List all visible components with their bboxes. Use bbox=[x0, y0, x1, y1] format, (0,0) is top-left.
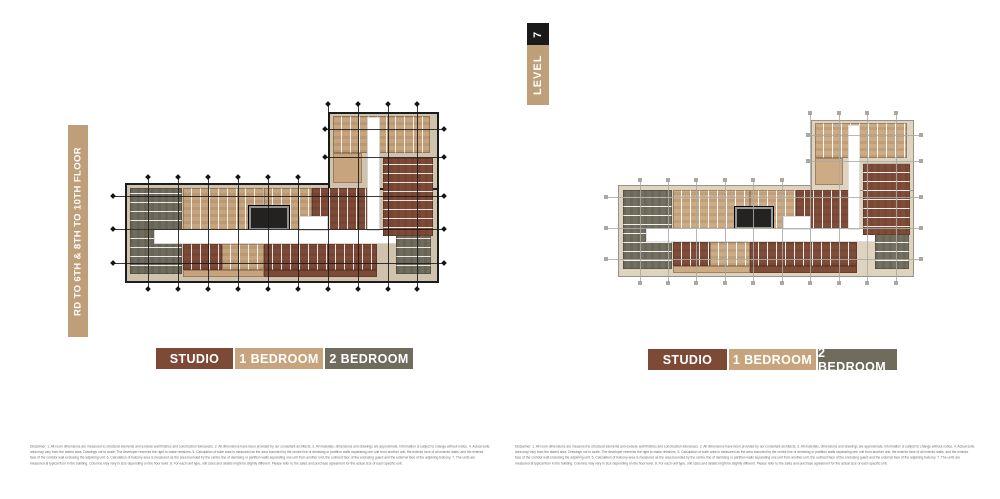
grid-marker bbox=[265, 286, 271, 292]
grid-line-vertical bbox=[268, 177, 269, 289]
legend-item-two-bedroom: 2 BEDROOM bbox=[325, 348, 413, 369]
grid-marker bbox=[894, 281, 898, 285]
legend-item-two-bedroom: 2 BEDROOM bbox=[818, 349, 897, 370]
grid-marker bbox=[919, 257, 923, 261]
grid-marker bbox=[604, 257, 608, 261]
grid-marker bbox=[780, 281, 784, 285]
plan-unit-block bbox=[333, 116, 430, 153]
grid-marker bbox=[694, 281, 698, 285]
grid-line-horizontal bbox=[606, 228, 921, 229]
disclaimer-left: Disclaimer: 1. All room dimensions are m… bbox=[30, 444, 490, 485]
plan-unit-block bbox=[183, 270, 264, 277]
grid-marker bbox=[325, 102, 331, 108]
plan-unit-block bbox=[673, 266, 750, 273]
plan-unit-block bbox=[863, 163, 910, 235]
grid-marker bbox=[865, 281, 869, 285]
grid-marker bbox=[694, 178, 698, 182]
grid-marker bbox=[145, 174, 151, 180]
grid-line-vertical bbox=[725, 180, 726, 283]
grid-marker bbox=[385, 102, 391, 108]
plan-unit-block bbox=[848, 125, 860, 230]
grid-marker bbox=[441, 154, 447, 160]
disclaimer-text: Disclaimer: 1. All room dimensions are m… bbox=[515, 444, 975, 466]
plan-unit-block bbox=[646, 228, 888, 242]
grid-marker bbox=[894, 111, 898, 115]
grid-line-vertical bbox=[696, 180, 697, 283]
grid-marker bbox=[919, 195, 923, 199]
grid-line-vertical bbox=[178, 177, 179, 289]
grid-marker bbox=[110, 226, 116, 232]
grid-marker bbox=[808, 281, 812, 285]
grid-marker bbox=[441, 126, 447, 132]
grid-marker bbox=[837, 111, 841, 115]
plan-unit-block bbox=[750, 242, 857, 266]
legend-item-one-bedroom: 1 BEDROOM bbox=[729, 349, 816, 370]
plan-unit-block bbox=[815, 123, 907, 157]
grid-marker bbox=[666, 178, 670, 182]
plan-unit-block bbox=[396, 233, 431, 274]
grid-marker bbox=[638, 281, 642, 285]
grid-marker bbox=[205, 174, 211, 180]
grid-marker bbox=[415, 286, 421, 292]
grid-line-vertical bbox=[753, 180, 754, 283]
grid-line-horizontal bbox=[606, 259, 921, 260]
grid-marker bbox=[295, 286, 301, 292]
grid-marker bbox=[235, 174, 241, 180]
grid-marker bbox=[145, 286, 151, 292]
grid-marker bbox=[919, 133, 923, 137]
grid-marker bbox=[806, 159, 810, 163]
plan-unit-block bbox=[183, 244, 222, 270]
grid-marker bbox=[919, 226, 923, 230]
plan-unit-block bbox=[264, 244, 377, 270]
grid-line-vertical bbox=[238, 177, 239, 289]
legend-item-one-bedroom: 1 BEDROOM bbox=[235, 348, 323, 369]
grid-marker bbox=[837, 281, 841, 285]
plan-unit-block bbox=[710, 242, 750, 266]
grid-line-horizontal bbox=[113, 229, 445, 230]
plan-unit-block bbox=[367, 117, 380, 230]
plan-unit-block bbox=[673, 242, 710, 266]
level-word-box: LEVEL bbox=[527, 45, 549, 105]
floor-range-label: RD TO 6TH & 8TH TO 10TH FLOOR bbox=[68, 125, 88, 337]
grid-marker bbox=[604, 195, 608, 199]
grid-marker bbox=[919, 159, 923, 163]
grid-line-vertical bbox=[208, 177, 209, 289]
disclaimer-text: Disclaimer: 1. All room dimensions are m… bbox=[30, 444, 490, 466]
floor-plan-right bbox=[612, 118, 918, 290]
grid-marker bbox=[355, 102, 361, 108]
plan-unit-block bbox=[383, 158, 433, 236]
grid-marker bbox=[325, 286, 331, 292]
grid-marker bbox=[723, 178, 727, 182]
grid-marker bbox=[723, 281, 727, 285]
grid-marker bbox=[604, 226, 608, 230]
legend-left: STUDIO 1 BEDROOM 2 BEDROOM bbox=[156, 348, 413, 369]
grid-marker bbox=[110, 193, 116, 199]
grid-line-vertical bbox=[148, 177, 149, 289]
plan-unit-block bbox=[154, 229, 408, 244]
grid-marker bbox=[751, 178, 755, 182]
grid-marker bbox=[385, 286, 391, 292]
grid-line-horizontal bbox=[113, 196, 445, 197]
grid-marker bbox=[638, 178, 642, 182]
grid-marker bbox=[235, 286, 241, 292]
grid-marker bbox=[175, 174, 181, 180]
plan-unit-block bbox=[222, 244, 264, 270]
grid-line-vertical bbox=[782, 180, 783, 283]
grid-line-vertical bbox=[640, 180, 641, 283]
disclaimer-right: Disclaimer: 1. All room dimensions are m… bbox=[515, 444, 975, 485]
level-number-box: 7 bbox=[527, 23, 549, 45]
grid-line-vertical bbox=[668, 180, 669, 283]
level-number: 7 bbox=[527, 23, 549, 45]
legend-item-studio: STUDIO bbox=[156, 348, 233, 369]
grid-line-horizontal bbox=[325, 157, 444, 158]
grid-marker bbox=[110, 260, 116, 266]
grid-marker bbox=[806, 133, 810, 137]
plan-unit-block bbox=[875, 232, 909, 270]
legend-item-studio: STUDIO bbox=[648, 349, 727, 370]
level-word: LEVEL bbox=[527, 45, 549, 105]
grid-marker bbox=[441, 193, 447, 199]
grid-line-horizontal bbox=[113, 263, 445, 264]
grid-line-horizontal bbox=[325, 129, 444, 130]
plan-unit-block bbox=[264, 270, 377, 277]
legend-right: STUDIO 1 BEDROOM 2 BEDROOM bbox=[648, 349, 897, 370]
grid-line-horizontal bbox=[808, 135, 921, 136]
level-badge: 7 LEVEL bbox=[527, 23, 549, 105]
grid-marker bbox=[441, 226, 447, 232]
grid-marker bbox=[441, 260, 447, 266]
floor-plan-left bbox=[119, 110, 441, 296]
grid-line-horizontal bbox=[606, 197, 921, 198]
grid-marker bbox=[295, 174, 301, 180]
grid-marker bbox=[205, 286, 211, 292]
floor-range-label-text: RD TO 6TH & 8TH TO 10TH FLOOR bbox=[68, 125, 88, 337]
grid-marker bbox=[265, 174, 271, 180]
grid-marker bbox=[355, 286, 361, 292]
grid-marker bbox=[666, 281, 670, 285]
grid-marker bbox=[865, 111, 869, 115]
plan-unit-block bbox=[750, 266, 857, 273]
grid-marker bbox=[780, 178, 784, 182]
grid-marker bbox=[751, 281, 755, 285]
grid-line-horizontal bbox=[808, 161, 921, 162]
grid-line-vertical bbox=[298, 177, 299, 289]
grid-marker bbox=[175, 286, 181, 292]
grid-marker bbox=[808, 111, 812, 115]
